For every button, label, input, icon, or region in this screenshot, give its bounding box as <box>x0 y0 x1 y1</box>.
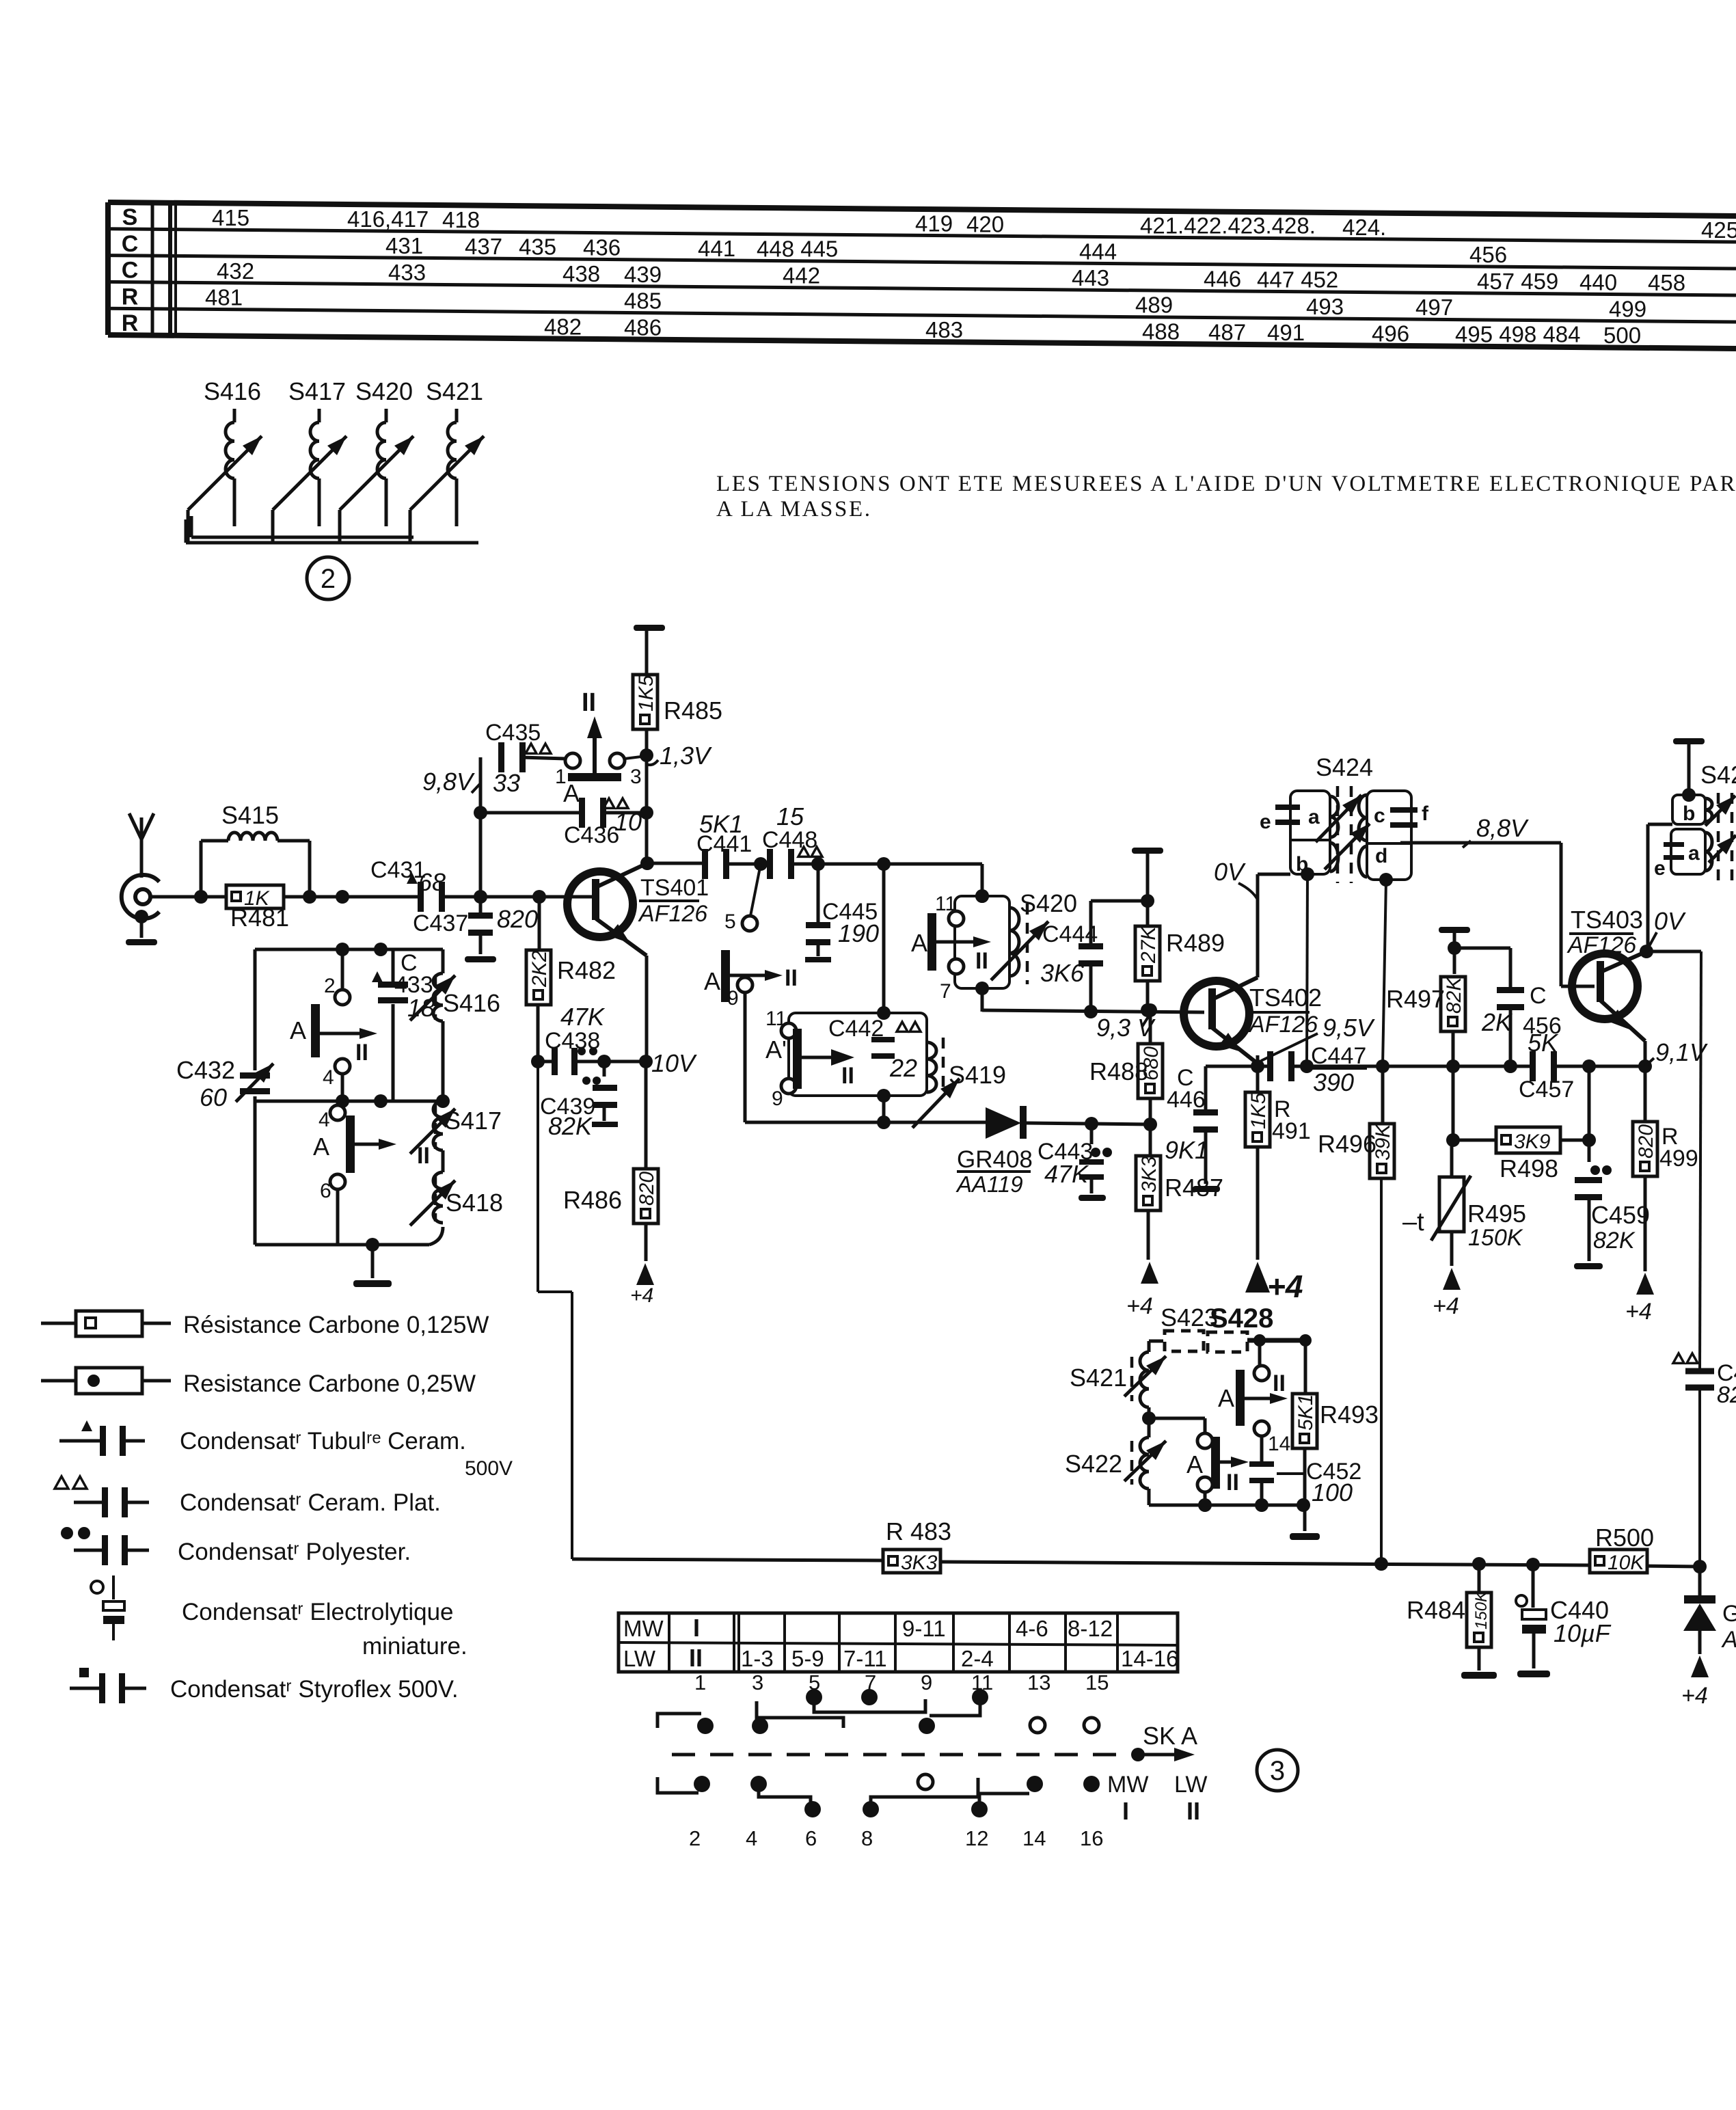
svg-text:433: 433 <box>388 260 426 285</box>
svg-text:495 498 484: 495 498 484 <box>1455 321 1581 347</box>
svg-text:9,5V: 9,5V <box>1323 1014 1375 1042</box>
svg-text:489: 489 <box>1135 293 1173 318</box>
svg-text:4: 4 <box>323 1066 334 1089</box>
svg-text:I: I <box>1122 1797 1129 1825</box>
svg-text:416,417: 416,417 <box>347 206 429 232</box>
svg-text:497: 497 <box>1415 295 1453 320</box>
svg-text:4: 4 <box>746 1826 757 1850</box>
svg-text:Condensatʳ Polyester.: Condensatʳ Polyester. <box>178 1539 411 1565</box>
svg-text:R495: R495 <box>1467 1200 1526 1228</box>
svg-text:TS403: TS403 <box>1571 906 1643 934</box>
svg-text:C: C <box>1530 983 1547 1009</box>
svg-text:TS401: TS401 <box>640 875 709 901</box>
svg-text:S421: S421 <box>426 377 483 405</box>
svg-text:82K: 82K <box>1443 976 1465 1014</box>
svg-text:+4: +4 <box>1126 1293 1153 1319</box>
svg-text:e: e <box>1654 857 1666 880</box>
svg-text:456: 456 <box>1469 242 1507 267</box>
svg-text:R: R <box>122 284 139 310</box>
svg-text:A: A <box>313 1133 329 1161</box>
svg-text:3: 3 <box>630 766 642 788</box>
svg-text:II: II <box>689 1644 703 1672</box>
svg-text:R489: R489 <box>1166 929 1225 957</box>
svg-text:Resistance Carbone 0,25W: Resistance Carbone 0,25W <box>183 1370 476 1397</box>
svg-text:II: II <box>785 965 798 991</box>
svg-text:c: c <box>1374 804 1385 827</box>
svg-text:S: S <box>122 204 138 230</box>
svg-text:S416: S416 <box>443 989 500 1017</box>
svg-text:A: A <box>290 1016 306 1044</box>
svg-text:A: A <box>1721 1627 1736 1653</box>
svg-text:10µF: 10µF <box>1554 1619 1612 1647</box>
svg-text:491: 491 <box>1272 1118 1311 1144</box>
svg-text:e: e <box>1260 811 1271 833</box>
svg-text:R498: R498 <box>1500 1154 1558 1182</box>
svg-text:A: A <box>563 779 580 807</box>
svg-text:440: 440 <box>1579 269 1617 295</box>
svg-text:33: 33 <box>493 769 520 797</box>
svg-text:82: 82 <box>1717 1382 1736 1408</box>
svg-text:0V: 0V <box>1214 858 1246 886</box>
svg-text:9,8V: 9,8V <box>422 768 475 796</box>
svg-text:421.422.423.428.: 421.422.423.428. <box>1140 213 1316 238</box>
svg-text:b: b <box>1683 802 1695 825</box>
svg-text:S419: S419 <box>949 1061 1006 1089</box>
svg-text:499: 499 <box>1609 296 1646 321</box>
svg-text:C437: C437 <box>413 910 468 936</box>
svg-text:1,3V: 1,3V <box>660 742 712 770</box>
svg-text:C: C <box>122 231 139 257</box>
svg-text:S417: S417 <box>444 1107 502 1135</box>
svg-text:3: 3 <box>1270 1756 1285 1786</box>
svg-text:R493: R493 <box>1320 1401 1379 1429</box>
svg-text:II: II <box>975 948 988 974</box>
svg-text:S428: S428 <box>1210 1303 1273 1334</box>
svg-text:A: A <box>1218 1384 1234 1412</box>
svg-text:9: 9 <box>921 1671 932 1694</box>
svg-text:60: 60 <box>200 1083 227 1111</box>
svg-text:5K: 5K <box>1528 1029 1559 1057</box>
svg-text:SK A: SK A <box>1143 1722 1197 1750</box>
svg-text:S416: S416 <box>204 377 261 405</box>
svg-text:S420: S420 <box>355 377 413 405</box>
svg-text:82K: 82K <box>1593 1228 1636 1254</box>
svg-text:II: II <box>1186 1797 1200 1825</box>
svg-text:a: a <box>1688 842 1700 865</box>
svg-text:LW: LW <box>623 1646 656 1671</box>
svg-text:TS402: TS402 <box>1249 984 1322 1012</box>
svg-text:–t: –t <box>1402 1208 1424 1236</box>
svg-text:I: I <box>693 1614 700 1642</box>
svg-text:C444: C444 <box>1042 921 1098 947</box>
svg-text:A': A' <box>765 1036 787 1064</box>
svg-text:AF126: AF126 <box>638 901 707 927</box>
svg-text:820: 820 <box>497 905 538 933</box>
svg-text:d: d <box>1375 845 1387 867</box>
svg-text:A: A <box>911 929 927 957</box>
svg-text:3: 3 <box>752 1671 763 1694</box>
svg-text:S415: S415 <box>221 801 279 829</box>
svg-text:5: 5 <box>724 910 736 933</box>
svg-text:481: 481 <box>205 285 243 310</box>
svg-text:+4: +4 <box>630 1284 653 1307</box>
svg-text:441: 441 <box>698 236 735 261</box>
svg-text:Condensatʳ Electrolytique: Condensatʳ Electrolytique <box>182 1599 454 1625</box>
svg-text:500V: 500V <box>465 1457 513 1480</box>
svg-text:10V: 10V <box>651 1049 697 1077</box>
svg-text:446: 446 <box>1204 267 1241 292</box>
svg-text:3K6: 3K6 <box>1040 959 1085 987</box>
svg-text:483: 483 <box>925 317 963 342</box>
svg-text:1: 1 <box>694 1671 706 1694</box>
svg-text:5-9: 5-9 <box>791 1646 824 1671</box>
svg-text:4-6: 4-6 <box>1016 1616 1048 1641</box>
svg-text:+4: +4 <box>1681 1683 1708 1709</box>
svg-text:190: 190 <box>838 919 879 947</box>
svg-text:C436: C436 <box>564 822 619 848</box>
svg-text:8,8V: 8,8V <box>1476 814 1529 842</box>
svg-text:8-12: 8-12 <box>1068 1616 1113 1641</box>
svg-text:II: II <box>1226 1470 1239 1496</box>
svg-text:2K2: 2K2 <box>528 950 551 988</box>
svg-text:R485: R485 <box>664 696 722 725</box>
svg-text:R481: R481 <box>230 904 289 932</box>
svg-text:3K3: 3K3 <box>1138 1156 1161 1193</box>
svg-text:II: II <box>355 1040 368 1066</box>
svg-text:2: 2 <box>324 975 336 997</box>
svg-text:A: A <box>704 967 720 995</box>
svg-text:2-4: 2-4 <box>961 1646 994 1671</box>
svg-text:S418: S418 <box>446 1189 503 1217</box>
svg-text:1K5: 1K5 <box>635 675 657 712</box>
svg-text:2: 2 <box>321 564 336 594</box>
svg-text:486: 486 <box>624 314 662 340</box>
svg-text:AF126: AF126 <box>1567 932 1636 958</box>
svg-text:LES TENSIONS ONT ETE MESUREES: LES TENSIONS ONT ETE MESUREES A L'AIDE D… <box>716 472 1736 496</box>
svg-text:12: 12 <box>965 1826 988 1850</box>
svg-text:419: 419 <box>915 211 953 236</box>
svg-text:820: 820 <box>636 1172 658 1206</box>
svg-text:488: 488 <box>1142 319 1180 344</box>
svg-text:R496: R496 <box>1318 1130 1376 1158</box>
svg-text:R488: R488 <box>1089 1057 1148 1085</box>
svg-text:1-3: 1-3 <box>741 1646 774 1671</box>
svg-text:436: 436 <box>583 234 621 260</box>
svg-text:Condensatʳ Styroflex 500V.: Condensatʳ Styroflex 500V. <box>170 1676 459 1703</box>
svg-text:2: 2 <box>689 1826 701 1850</box>
svg-text:432: 432 <box>217 258 254 284</box>
svg-text:424.: 424. <box>1342 215 1386 240</box>
svg-text:6: 6 <box>320 1180 331 1202</box>
svg-text:9-11: 9-11 <box>902 1616 946 1641</box>
svg-text:437: 437 <box>465 234 502 259</box>
svg-text:487: 487 <box>1208 319 1246 344</box>
svg-text:493: 493 <box>1306 294 1344 319</box>
svg-text:13: 13 <box>1027 1671 1050 1694</box>
svg-text:10K: 10K <box>1608 1552 1645 1574</box>
svg-text:R500: R500 <box>1595 1524 1654 1552</box>
svg-text:150K: 150K <box>1468 1225 1523 1251</box>
svg-text:496: 496 <box>1372 321 1409 346</box>
svg-text:MW: MW <box>1107 1772 1148 1798</box>
svg-text:7: 7 <box>940 980 951 1003</box>
svg-text:47K: 47K <box>1044 1160 1089 1188</box>
svg-text:11: 11 <box>765 1007 787 1030</box>
svg-text:II: II <box>1273 1370 1286 1396</box>
svg-text:47K: 47K <box>560 1003 606 1031</box>
svg-text:miniature.: miniature. <box>362 1633 467 1660</box>
svg-text:MW: MW <box>623 1616 664 1641</box>
svg-text:1K5: 1K5 <box>1247 1092 1270 1129</box>
svg-text:GR408: GR408 <box>957 1146 1033 1173</box>
svg-text:15: 15 <box>1085 1671 1109 1694</box>
svg-text:a: a <box>1308 806 1320 828</box>
svg-text:G: G <box>1722 1601 1736 1627</box>
svg-text:27K: 27K <box>1137 925 1160 964</box>
svg-text:R486: R486 <box>563 1186 622 1214</box>
svg-text:R497: R497 <box>1386 985 1445 1013</box>
svg-text:R482: R482 <box>557 956 616 984</box>
svg-text:2K: 2K <box>1481 1008 1513 1036</box>
svg-text:A LA MASSE.: A LA MASSE. <box>716 497 872 522</box>
svg-text:500: 500 <box>1603 323 1641 348</box>
svg-text:458: 458 <box>1648 270 1685 295</box>
svg-text:S421: S421 <box>1070 1364 1127 1392</box>
svg-text:435: 435 <box>519 234 556 260</box>
svg-text:9: 9 <box>727 987 739 1010</box>
svg-text:R: R <box>122 310 139 336</box>
svg-text:5K1: 5K1 <box>1294 1394 1317 1431</box>
svg-text:+4: +4 <box>1625 1299 1652 1325</box>
svg-text:439: 439 <box>624 262 662 287</box>
svg-text:418: 418 <box>442 207 480 232</box>
svg-text:10: 10 <box>614 808 642 836</box>
svg-text:C432: C432 <box>176 1056 235 1084</box>
svg-text:II: II <box>841 1063 854 1089</box>
svg-text:A: A <box>1186 1450 1203 1478</box>
svg-text:f: f <box>1422 802 1429 825</box>
svg-text:14-16: 14-16 <box>1121 1646 1178 1671</box>
svg-text:II: II <box>582 688 596 717</box>
svg-text:446: 446 <box>1167 1087 1206 1113</box>
svg-text:LW: LW <box>1174 1772 1207 1798</box>
svg-text:S422: S422 <box>1065 1450 1122 1478</box>
svg-text:+4: +4 <box>1433 1293 1459 1319</box>
svg-text:6: 6 <box>805 1826 817 1850</box>
svg-text:0V: 0V <box>1654 907 1686 935</box>
svg-text:R 483: R 483 <box>886 1517 951 1545</box>
svg-text:15: 15 <box>776 802 804 830</box>
svg-text:Condensatʳ Tubulʳᵉ Ceram.: Condensatʳ Tubulʳᵉ Ceram. <box>180 1428 466 1455</box>
svg-text:457 459: 457 459 <box>1477 269 1558 294</box>
svg-text:9: 9 <box>772 1087 783 1110</box>
svg-text:425: 425 <box>1701 217 1736 243</box>
svg-text:431: 431 <box>385 233 423 258</box>
svg-text:+4: +4 <box>1267 1269 1303 1304</box>
svg-text:448 445: 448 445 <box>757 236 838 262</box>
svg-text:820: 820 <box>1635 1124 1657 1159</box>
svg-text:82K: 82K <box>548 1112 593 1140</box>
svg-text:22: 22 <box>889 1054 917 1082</box>
svg-text:150K: 150K <box>1472 1591 1491 1629</box>
svg-text:9K1: 9K1 <box>1165 1136 1208 1164</box>
svg-text:390: 390 <box>1313 1068 1354 1096</box>
svg-text:3K9: 3K9 <box>1514 1131 1551 1153</box>
svg-text:499: 499 <box>1659 1146 1698 1172</box>
svg-text:491: 491 <box>1267 320 1305 345</box>
svg-text:11: 11 <box>935 893 956 915</box>
svg-text:S417: S417 <box>288 377 346 405</box>
svg-text:482: 482 <box>544 314 582 339</box>
svg-text:485: 485 <box>624 288 662 314</box>
svg-text:3K3: 3K3 <box>901 1552 938 1574</box>
svg-text:447 452: 447 452 <box>1257 267 1338 292</box>
svg-text:C: C <box>122 258 139 284</box>
svg-text:C459: C459 <box>1591 1201 1650 1229</box>
svg-text:14: 14 <box>1268 1433 1290 1455</box>
svg-text:S424: S424 <box>1316 753 1373 781</box>
svg-text:C442: C442 <box>828 1016 884 1042</box>
svg-text:438: 438 <box>562 261 600 286</box>
svg-text:R487: R487 <box>1165 1174 1223 1202</box>
svg-text:444: 444 <box>1079 239 1117 264</box>
svg-text:443: 443 <box>1072 265 1109 290</box>
svg-text:C457: C457 <box>1519 1077 1574 1103</box>
svg-text:C435: C435 <box>485 720 541 746</box>
svg-text:7-11: 7-11 <box>843 1646 887 1671</box>
svg-text:415: 415 <box>212 205 249 230</box>
svg-text:AA119: AA119 <box>955 1172 1023 1197</box>
svg-text:100: 100 <box>1312 1478 1353 1506</box>
svg-text:8: 8 <box>861 1826 873 1850</box>
svg-text:442: 442 <box>783 263 820 288</box>
svg-text:420: 420 <box>966 211 1004 236</box>
svg-text:Résistance Carbone 0,125W: Résistance Carbone 0,125W <box>183 1312 489 1338</box>
svg-text:14: 14 <box>1022 1826 1046 1850</box>
svg-text:R484: R484 <box>1407 1596 1465 1624</box>
svg-text:Condensatʳ Ceram. Plat.: Condensatʳ Ceram. Plat. <box>180 1489 441 1516</box>
svg-text:S425: S425 <box>1700 761 1736 789</box>
svg-text:16: 16 <box>1080 1826 1103 1850</box>
svg-text:4: 4 <box>318 1109 330 1131</box>
svg-text:S420: S420 <box>1020 889 1077 917</box>
